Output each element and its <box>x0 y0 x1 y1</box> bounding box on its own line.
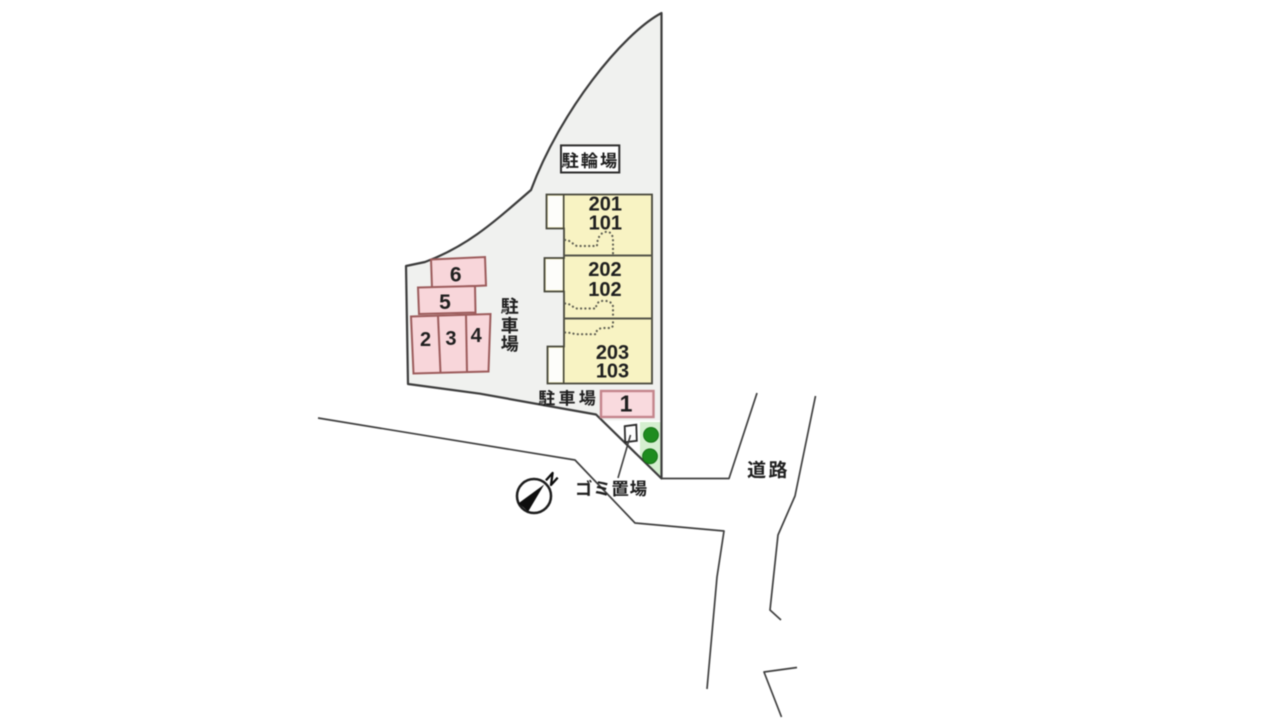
svg-text:2: 2 <box>420 329 431 351</box>
svg-text:6: 6 <box>450 264 462 287</box>
svg-text:103: 103 <box>596 361 629 383</box>
svg-text:5: 5 <box>439 291 451 314</box>
svg-text:4: 4 <box>471 325 483 347</box>
svg-text:202: 202 <box>588 259 621 281</box>
svg-text:3: 3 <box>445 328 456 350</box>
svg-text:1: 1 <box>620 391 633 417</box>
svg-text:102: 102 <box>588 279 621 301</box>
